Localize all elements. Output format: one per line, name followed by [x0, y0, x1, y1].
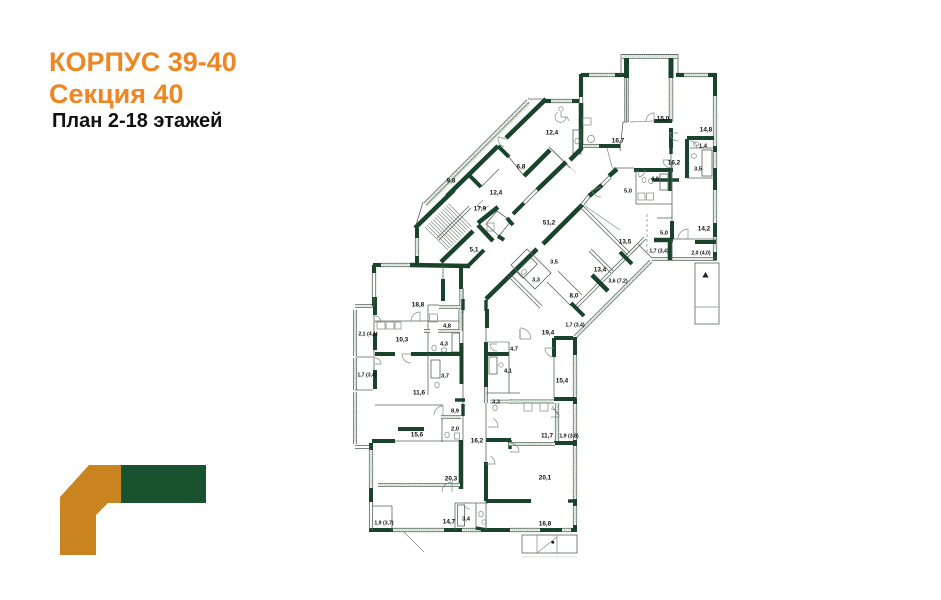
svg-text:12,4: 12,4	[490, 189, 503, 196]
svg-text:19,4: 19,4	[542, 329, 555, 336]
svg-text:3,3: 3,3	[492, 399, 501, 405]
svg-text:5,1: 5,1	[470, 246, 479, 253]
svg-text:3,7: 3,7	[441, 373, 449, 379]
svg-text:17,9: 17,9	[474, 205, 487, 212]
svg-text:5,0: 5,0	[624, 188, 632, 194]
svg-text:4,8: 4,8	[443, 323, 452, 329]
svg-text:1,9 (3,7): 1,9 (3,7)	[374, 520, 394, 526]
svg-text:14,8: 14,8	[700, 126, 713, 133]
svg-text:2,0 (4,0): 2,0 (4,0)	[691, 250, 711, 256]
svg-text:3,5: 3,5	[694, 166, 703, 172]
svg-text:2,1 (4,1): 2,1 (4,1)	[358, 331, 378, 337]
svg-text:8,9: 8,9	[451, 408, 460, 414]
svg-text:6,8: 6,8	[517, 163, 526, 170]
svg-text:16,8: 16,8	[539, 520, 552, 527]
svg-text:1,7 (3,4): 1,7 (3,4)	[649, 248, 669, 254]
svg-text:11,6: 11,6	[413, 389, 426, 396]
svg-text:18,8: 18,8	[412, 301, 425, 308]
svg-text:8,0: 8,0	[570, 292, 579, 299]
svg-text:3,3: 3,3	[532, 277, 541, 283]
svg-text:51,2: 51,2	[543, 219, 556, 226]
svg-text:13,4: 13,4	[594, 266, 607, 273]
svg-text:4,1: 4,1	[504, 368, 513, 374]
svg-text:1,7 (3,4): 1,7 (3,4)	[565, 322, 585, 328]
svg-text:15,0: 15,0	[657, 115, 670, 122]
svg-text:4,7: 4,7	[510, 346, 518, 352]
svg-text:16,2: 16,2	[668, 159, 681, 166]
svg-text:3,4: 3,4	[462, 516, 471, 522]
svg-text:5,0: 5,0	[660, 230, 668, 236]
svg-text:9,8: 9,8	[447, 177, 456, 184]
svg-text:12,4: 12,4	[546, 129, 559, 136]
svg-text:14,2: 14,2	[698, 225, 711, 232]
svg-text:4,3: 4,3	[440, 341, 449, 347]
svg-text:1,7 (3,4): 1,7 (3,4)	[357, 372, 377, 378]
svg-text:1,9 (3,8): 1,9 (3,8)	[559, 433, 579, 439]
svg-text:20,3: 20,3	[445, 475, 458, 482]
svg-text:16,2: 16,2	[471, 437, 484, 444]
svg-text:3,6 (7,2): 3,6 (7,2)	[608, 278, 628, 284]
svg-text:16,7: 16,7	[612, 137, 625, 144]
svg-text:1,4: 1,4	[699, 143, 708, 149]
svg-text:14,7: 14,7	[443, 518, 456, 525]
svg-text:11,7: 11,7	[541, 432, 554, 439]
svg-text:4,0: 4,0	[651, 176, 659, 182]
svg-text:20,1: 20,1	[539, 474, 552, 481]
svg-text:15,6: 15,6	[411, 431, 424, 438]
svg-text:13,5: 13,5	[619, 238, 632, 245]
svg-text:10,3: 10,3	[396, 336, 409, 343]
svg-text:15,4: 15,4	[556, 377, 569, 384]
svg-text:2,0: 2,0	[451, 426, 459, 432]
svg-text:3,5: 3,5	[550, 259, 559, 265]
